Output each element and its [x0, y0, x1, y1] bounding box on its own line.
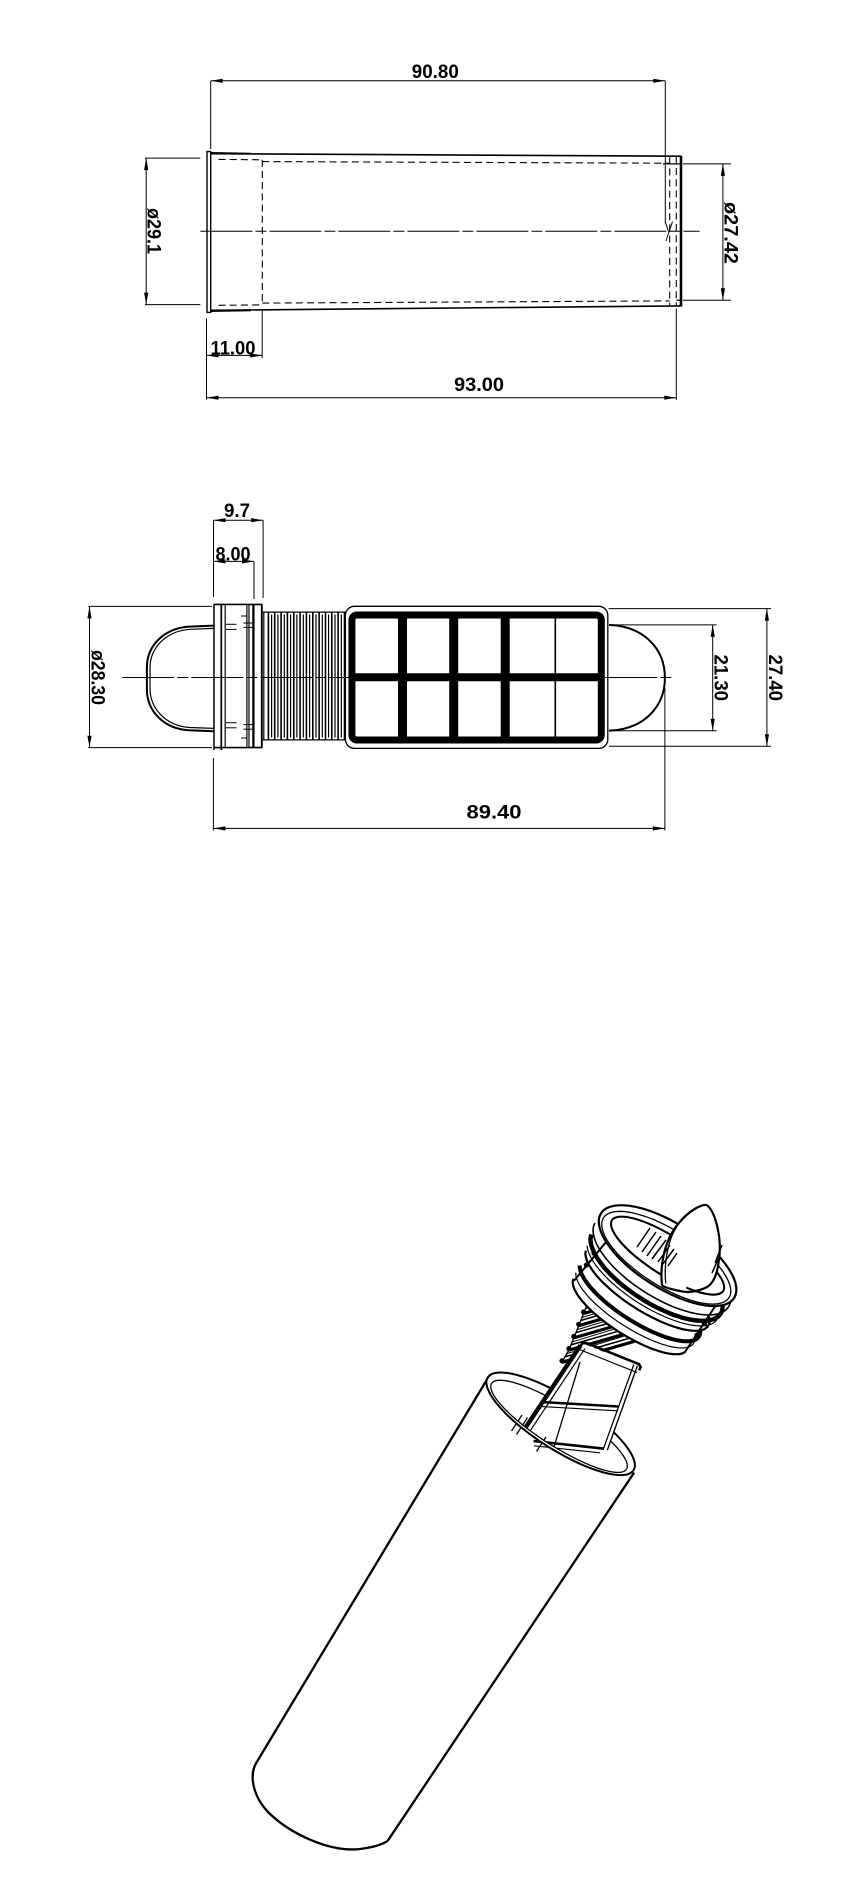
svg-text:90.80: 90.80: [412, 61, 459, 83]
svg-text:89.40: 89.40: [467, 802, 522, 824]
svg-text:8.00: 8.00: [216, 544, 251, 566]
svg-text:27.40: 27.40: [764, 655, 786, 702]
svg-text:93.00: 93.00: [454, 374, 504, 396]
svg-text:ø27.42: ø27.42: [720, 202, 742, 264]
svg-text:ø29.1: ø29.1: [143, 208, 165, 254]
svg-text:21.30: 21.30: [710, 655, 732, 702]
svg-text:ø28.30: ø28.30: [87, 650, 109, 705]
svg-text:11.00: 11.00: [211, 337, 256, 359]
svg-text:9.7: 9.7: [224, 500, 250, 522]
